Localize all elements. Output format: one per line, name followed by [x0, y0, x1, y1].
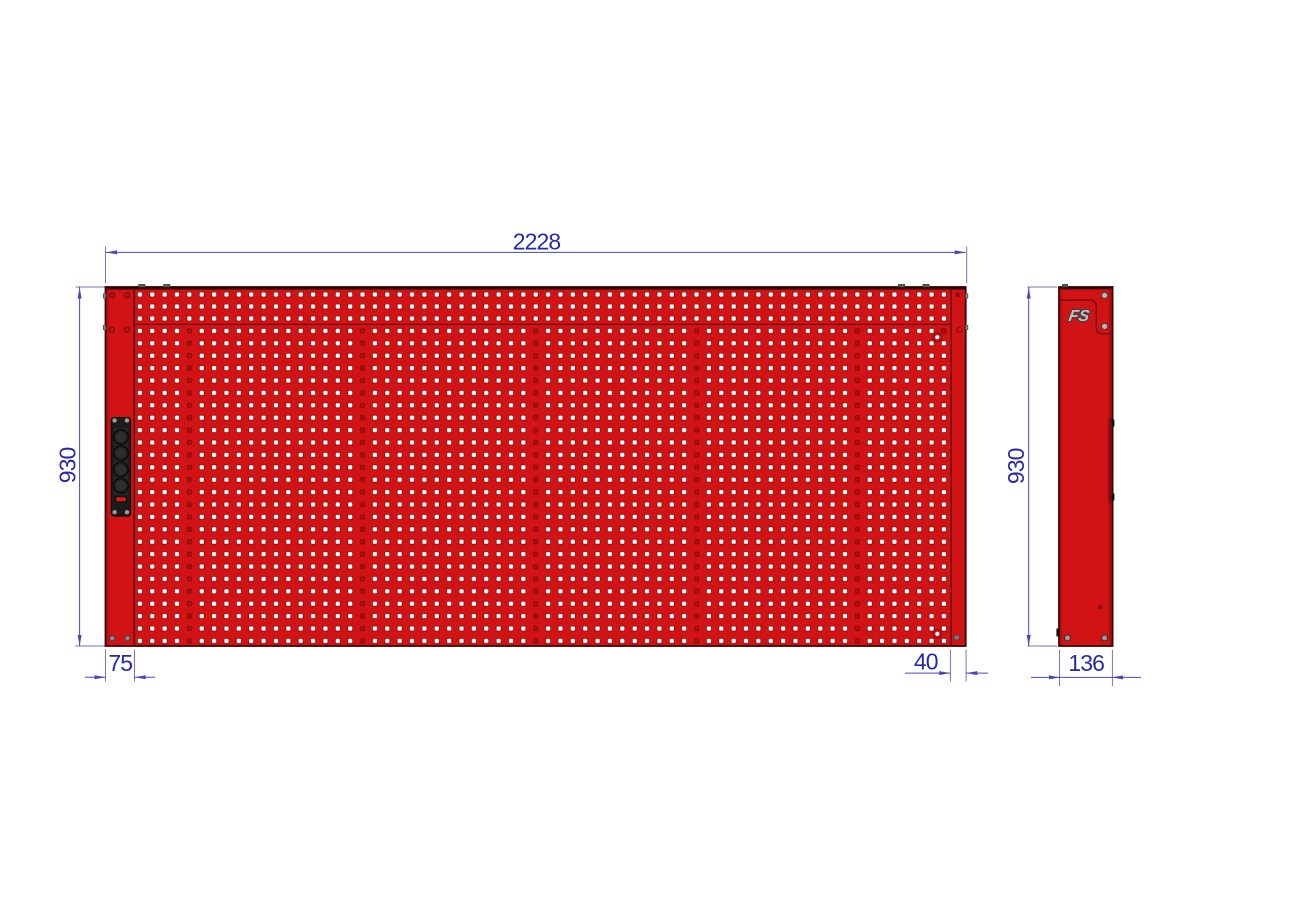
- svg-text:2228: 2228: [513, 229, 561, 255]
- svg-text:FS: FS: [1067, 307, 1091, 325]
- svg-text:136: 136: [1068, 650, 1104, 676]
- svg-text:75: 75: [108, 650, 132, 676]
- svg-text:930: 930: [1003, 448, 1029, 484]
- svg-text:40: 40: [914, 648, 938, 674]
- svg-text:930: 930: [55, 447, 81, 483]
